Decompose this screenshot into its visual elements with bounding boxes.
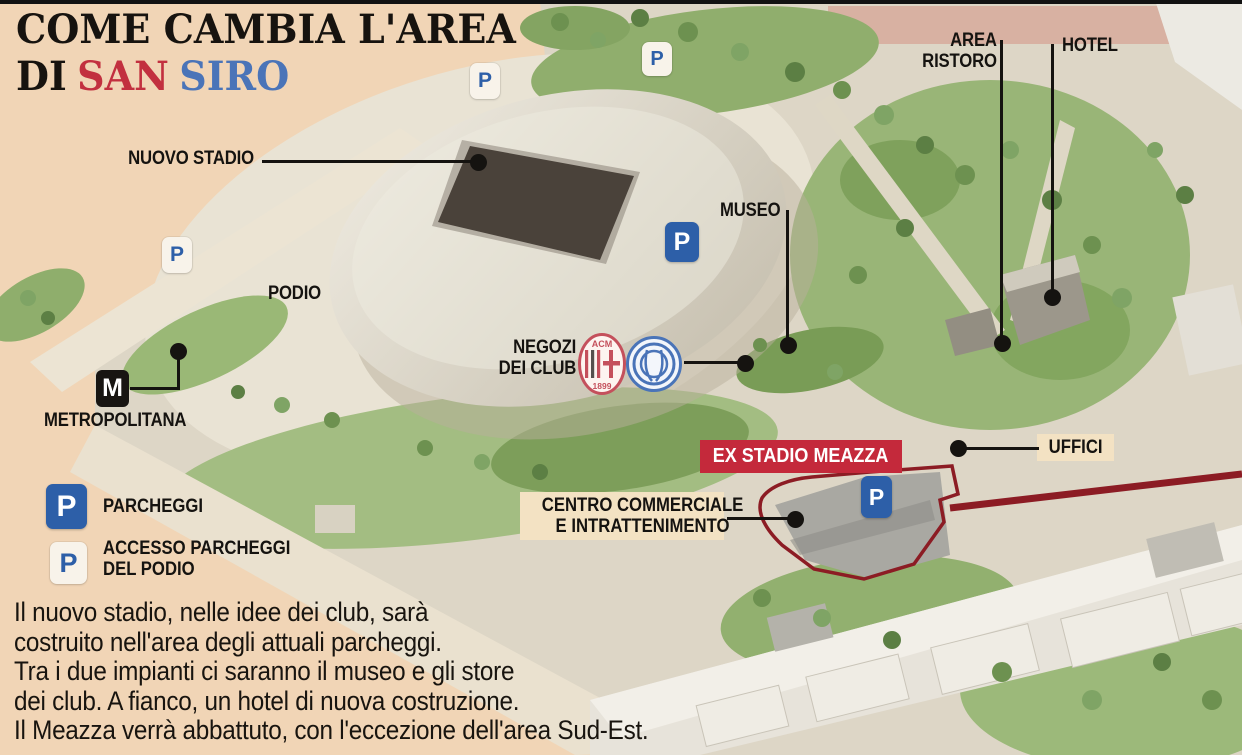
leader-uffici: [965, 447, 1039, 450]
description-line: Il nuovo stadio, nelle idee dei club, sa…: [14, 598, 648, 628]
infographic-canvas: COME CAMBIA L'AREA DISANSIRO P P P P P N…: [0, 0, 1242, 755]
description-line: dei club. A fianco, un hotel di nuova co…: [14, 687, 648, 717]
label-podio: PODIO: [268, 283, 321, 304]
inter-badge: [626, 336, 682, 392]
parking-access-icon-top-left: P: [470, 63, 500, 99]
title-line1: COME CAMBIA L'AREA: [16, 6, 516, 53]
dot-area-ristoro: [994, 335, 1011, 352]
leader-area-ristoro: [1000, 40, 1003, 336]
legend-parcheggi-label: PARCHEGGI: [103, 496, 203, 517]
leader-centro-commerciale: [727, 517, 789, 520]
label-centro-commerciale: CENTRO COMMERCIALE E INTRATTENIMENTO: [520, 492, 724, 540]
parking-access-icon-left: P: [162, 237, 192, 273]
description-line: costruito nell'area degli attuali parche…: [14, 628, 648, 658]
dot-uffici: [950, 440, 967, 457]
description-line: Tra i due impianti ci saranno il museo e…: [14, 657, 648, 687]
leader-metro-v: [177, 356, 180, 389]
dot-centro-commerciale: [787, 511, 804, 528]
description-line: Il Meazza verrà abbattuto, con l'eccezio…: [14, 716, 648, 746]
dot-museo: [780, 337, 797, 354]
leader-negozi: [684, 361, 739, 364]
dot-nuovo-stadio: [470, 154, 487, 171]
parking-access-icon-top-center: P: [642, 42, 672, 76]
metro-icon: M: [96, 370, 129, 407]
label-museo: MUSEO: [720, 200, 780, 221]
label-area-ristoro: AREA RISTORO: [922, 30, 997, 72]
legend-accesso-label: ACCESSO PARCHEGGI DEL PODIO: [103, 538, 290, 580]
title-san: SAN: [77, 53, 169, 100]
title-di: DI: [16, 53, 67, 100]
ac-milan-badge: ACM 1899: [578, 333, 626, 395]
svg-text:1899: 1899: [593, 381, 612, 391]
svg-text:ACM: ACM: [592, 339, 613, 349]
label-uffici: UFFICI: [1037, 434, 1114, 461]
title-line2: DISANSIRO: [16, 53, 516, 100]
legend-parking-access-icon: P: [50, 542, 87, 584]
leader-hotel: [1051, 44, 1054, 291]
parking-icon-stadium: P: [665, 222, 699, 262]
leader-nuovo-stadio: [262, 160, 472, 163]
leader-museo: [786, 210, 789, 340]
title-siro: SIRO: [179, 53, 289, 100]
parking-icon-meazza: P: [861, 476, 892, 518]
dot-hotel: [1044, 289, 1061, 306]
leader-metro-h: [130, 387, 180, 390]
page-title: COME CAMBIA L'AREA DISANSIRO: [16, 6, 516, 100]
banner-ex-stadio-meazza: EX STADIO MEAZZA: [700, 440, 902, 473]
label-nuovo-stadio: NUOVO STADIO: [128, 148, 254, 169]
top-border: [0, 0, 1242, 4]
dot-metro: [170, 343, 187, 360]
description-paragraph: Il nuovo stadio, nelle idee dei club, sa…: [14, 598, 648, 746]
legend-parking-icon: P: [46, 484, 87, 529]
label-metropolitana: METROPOLITANA: [44, 410, 186, 431]
label-hotel: HOTEL: [1062, 35, 1118, 56]
dot-negozi: [737, 355, 754, 372]
label-negozi-dei-club: NEGOZI DEI CLUB: [498, 337, 576, 379]
